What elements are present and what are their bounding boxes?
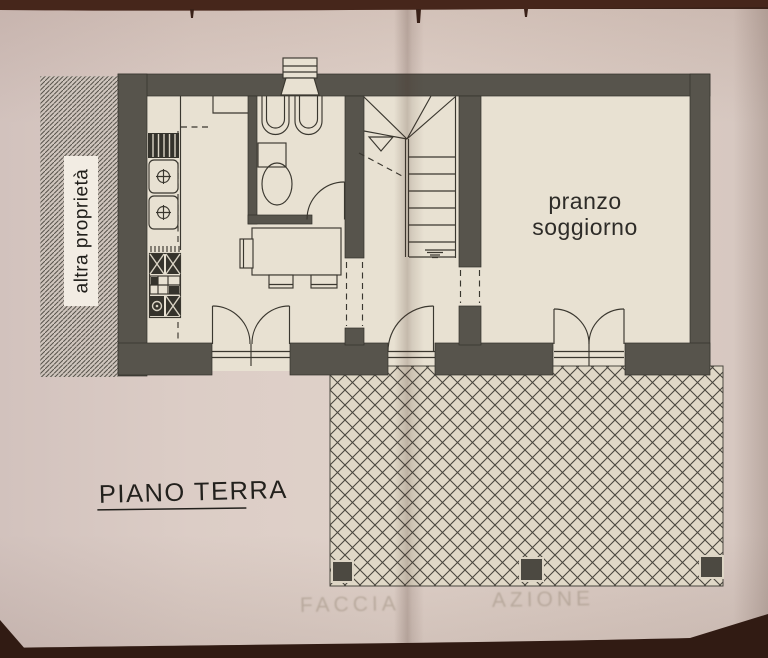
chair-left xyxy=(240,239,253,268)
ghost-text-left: FACCIA xyxy=(300,592,400,617)
wall-kitchen-hall xyxy=(345,96,364,258)
room-label-living-dining-line1: pranzo xyxy=(548,188,621,214)
terrace xyxy=(330,366,723,586)
wall-bath-kitchen xyxy=(248,96,257,224)
paper-right-fold xyxy=(733,9,768,649)
wall-south-a xyxy=(118,343,212,375)
wall-west xyxy=(118,74,147,376)
wall-east xyxy=(690,74,710,366)
chair-bottom-1 xyxy=(269,275,293,288)
wall-south-c xyxy=(435,343,553,375)
chimney xyxy=(281,58,319,95)
ghost-text-right: AZIONE xyxy=(492,587,595,612)
wall-south-d xyxy=(625,343,710,375)
wall-kitchen-hall-stub xyxy=(345,328,364,345)
wall-hall-living-stub xyxy=(459,306,481,345)
paper-crease xyxy=(394,9,424,649)
adjacent-property-label: altra proprietà xyxy=(72,169,93,294)
wall-south-b xyxy=(290,343,388,375)
wall-bath-south xyxy=(248,215,312,224)
pillar-1 xyxy=(332,561,353,582)
pillar-3 xyxy=(700,556,723,578)
wall-hall-living xyxy=(459,96,481,267)
floor-plan-photo: altra proprietà pranzo soggiorno PIANO T… xyxy=(0,0,768,658)
table xyxy=(252,228,341,275)
chair-bottom-2 xyxy=(311,275,337,288)
kitchen-vent xyxy=(148,133,179,158)
floor-plan-svg: altra proprietà pranzo soggiorno PIANO T… xyxy=(0,0,768,658)
pillar-2 xyxy=(520,558,543,581)
floor-title: PIANO TERRA xyxy=(99,476,289,509)
room-label-living-dining-line2: soggiorno xyxy=(532,214,638,240)
